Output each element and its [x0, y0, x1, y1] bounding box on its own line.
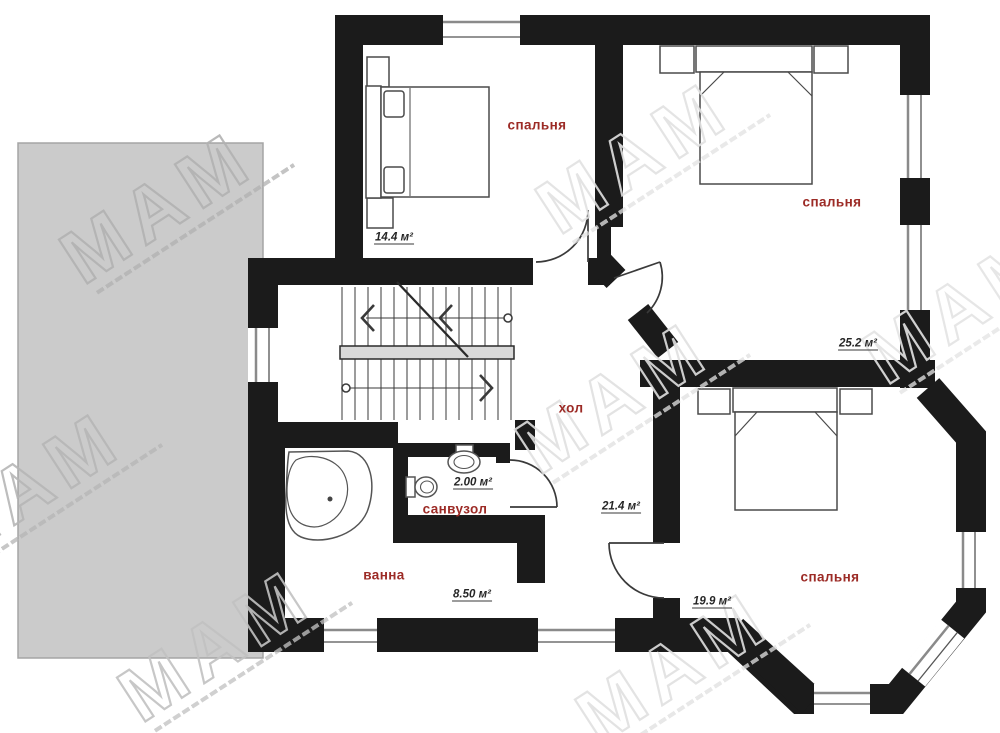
area-label-bedroom-1: 14.4 м²: [374, 232, 414, 245]
walls: [248, 15, 935, 652]
floor-plan-drawing: [0, 0, 1000, 733]
toilet-icon: [406, 477, 437, 497]
door-arc: [510, 460, 557, 507]
area-label-hall: 21.4 м²: [601, 501, 641, 514]
room-label-hall: хол: [559, 401, 584, 416]
room-label-bedroom-3: спальня: [801, 570, 860, 585]
window: [538, 622, 615, 650]
room-label-bedroom-2: спальня: [803, 195, 862, 210]
bed-icon: [660, 46, 848, 184]
window: [324, 622, 377, 650]
room-label-wc: санвузол: [423, 502, 488, 517]
stairs: [340, 282, 514, 420]
bathtub-icon: [286, 451, 372, 540]
terrace-area: [18, 143, 263, 658]
area-label-bath: 8.50 м²: [452, 589, 492, 602]
window: [248, 328, 278, 382]
room-label-bath: ванна: [363, 568, 404, 583]
window: [900, 95, 930, 178]
door-arc: [536, 210, 588, 262]
window: [814, 684, 870, 714]
stair-landing: [340, 346, 514, 359]
bed-icon: [698, 388, 872, 510]
area-label-bedroom-3: 19.9 м²: [692, 596, 732, 609]
room-label-bedroom-1: спальня: [508, 118, 567, 133]
bed-icon: [366, 57, 489, 228]
area-label-bedroom-2: 25.2 м²: [838, 338, 878, 351]
window: [900, 225, 930, 310]
door-arc: [609, 543, 664, 598]
stair-direction-down: [342, 375, 492, 401]
window: [956, 532, 986, 588]
area-label-wc: 2.00 м²: [453, 477, 493, 490]
floor-plan-page: МАМ МАМ МАМ МАМ МАМ МАМ МАМ спальня 14.4…: [0, 0, 1000, 733]
window: [443, 15, 520, 45]
stair-direction-up: [362, 305, 512, 331]
